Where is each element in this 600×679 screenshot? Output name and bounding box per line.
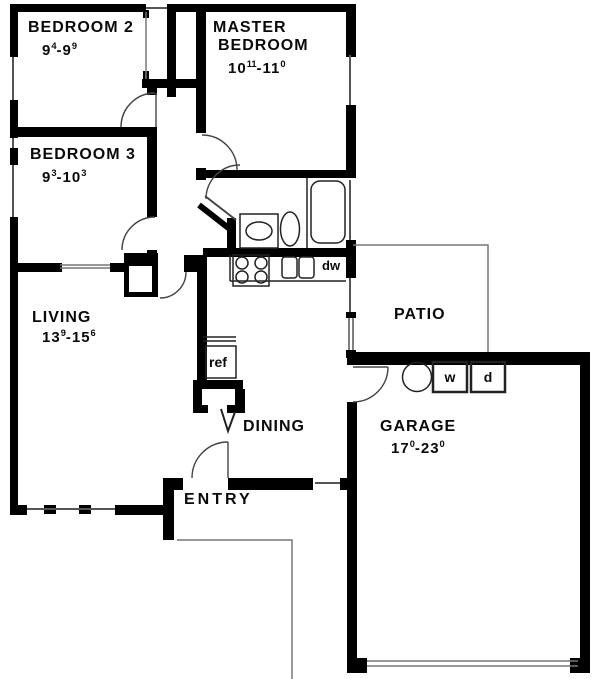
- room-dim-bedroom2: 94-99: [42, 42, 77, 58]
- bedroom2-door-arc: [121, 93, 155, 127]
- room-label-entry: ENTRY: [184, 492, 253, 508]
- wall-bath-angled: [199, 205, 231, 230]
- master-door-arc: [202, 135, 237, 170]
- bath-sink: [246, 222, 272, 240]
- patio-slider: [349, 318, 353, 350]
- room-label-living: LIVING: [32, 310, 91, 326]
- room-label-master-2: BEDROOM: [218, 38, 309, 54]
- entry-walk-outline: [177, 540, 292, 679]
- room-dim-living: 139-156: [42, 329, 96, 345]
- room-dim-bedroom3: 93-103: [42, 169, 86, 185]
- washer-label: w: [433, 362, 467, 392]
- room-label-patio: PATIO: [394, 307, 446, 323]
- dishwasher-label: dw: [322, 259, 340, 272]
- patio-outline: [353, 245, 488, 352]
- kitchen-sink-right: [299, 257, 314, 278]
- room-dim-garage: 170-230: [391, 440, 445, 456]
- water-heater: [403, 363, 432, 392]
- room-label-dining: DINING: [243, 419, 305, 435]
- stove-burner: [236, 257, 248, 269]
- entry-door-arc: [192, 442, 228, 478]
- garage-door-arc: [353, 367, 388, 402]
- room-label-bedroom3: BEDROOM 3: [30, 147, 136, 163]
- room-label-garage: GARAGE: [380, 419, 456, 435]
- dryer-label: d: [471, 362, 505, 392]
- stove-burner: [255, 257, 267, 269]
- room-label-master-1: MASTER: [213, 20, 287, 36]
- dining-flow-arrow: [221, 409, 235, 431]
- floor-plan: BEDROOM 2 94-99 MASTER BEDROOM 1011-110 …: [0, 0, 600, 679]
- toilet: [281, 212, 300, 246]
- kitchen-sink-left: [282, 257, 297, 278]
- bedroom3-door-arc: [122, 217, 155, 250]
- room-label-bedroom2: BEDROOM 2: [28, 20, 134, 36]
- refrigerator-label: ref: [209, 355, 227, 369]
- bath-door-arc: [206, 165, 240, 199]
- outlines: [60, 12, 578, 679]
- hall-living-door-arc: [160, 272, 186, 298]
- room-dim-master: 1011-110: [228, 60, 286, 76]
- fixtures: [203, 178, 505, 431]
- bathtub: [311, 181, 345, 243]
